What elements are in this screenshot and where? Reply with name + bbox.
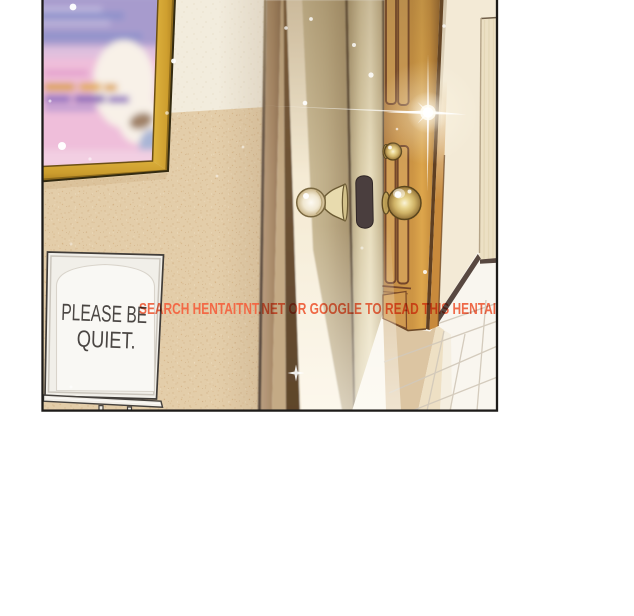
svg-text:QUIET.: QUIET. [76, 326, 136, 354]
svg-text:SEARCH HENTAITNT.NET OR GOOGLE: SEARCH HENTAITNT.NET OR GOOGLE TO READ T… [139, 299, 496, 317]
svg-text:PLEASE BE: PLEASE BE [61, 299, 148, 328]
